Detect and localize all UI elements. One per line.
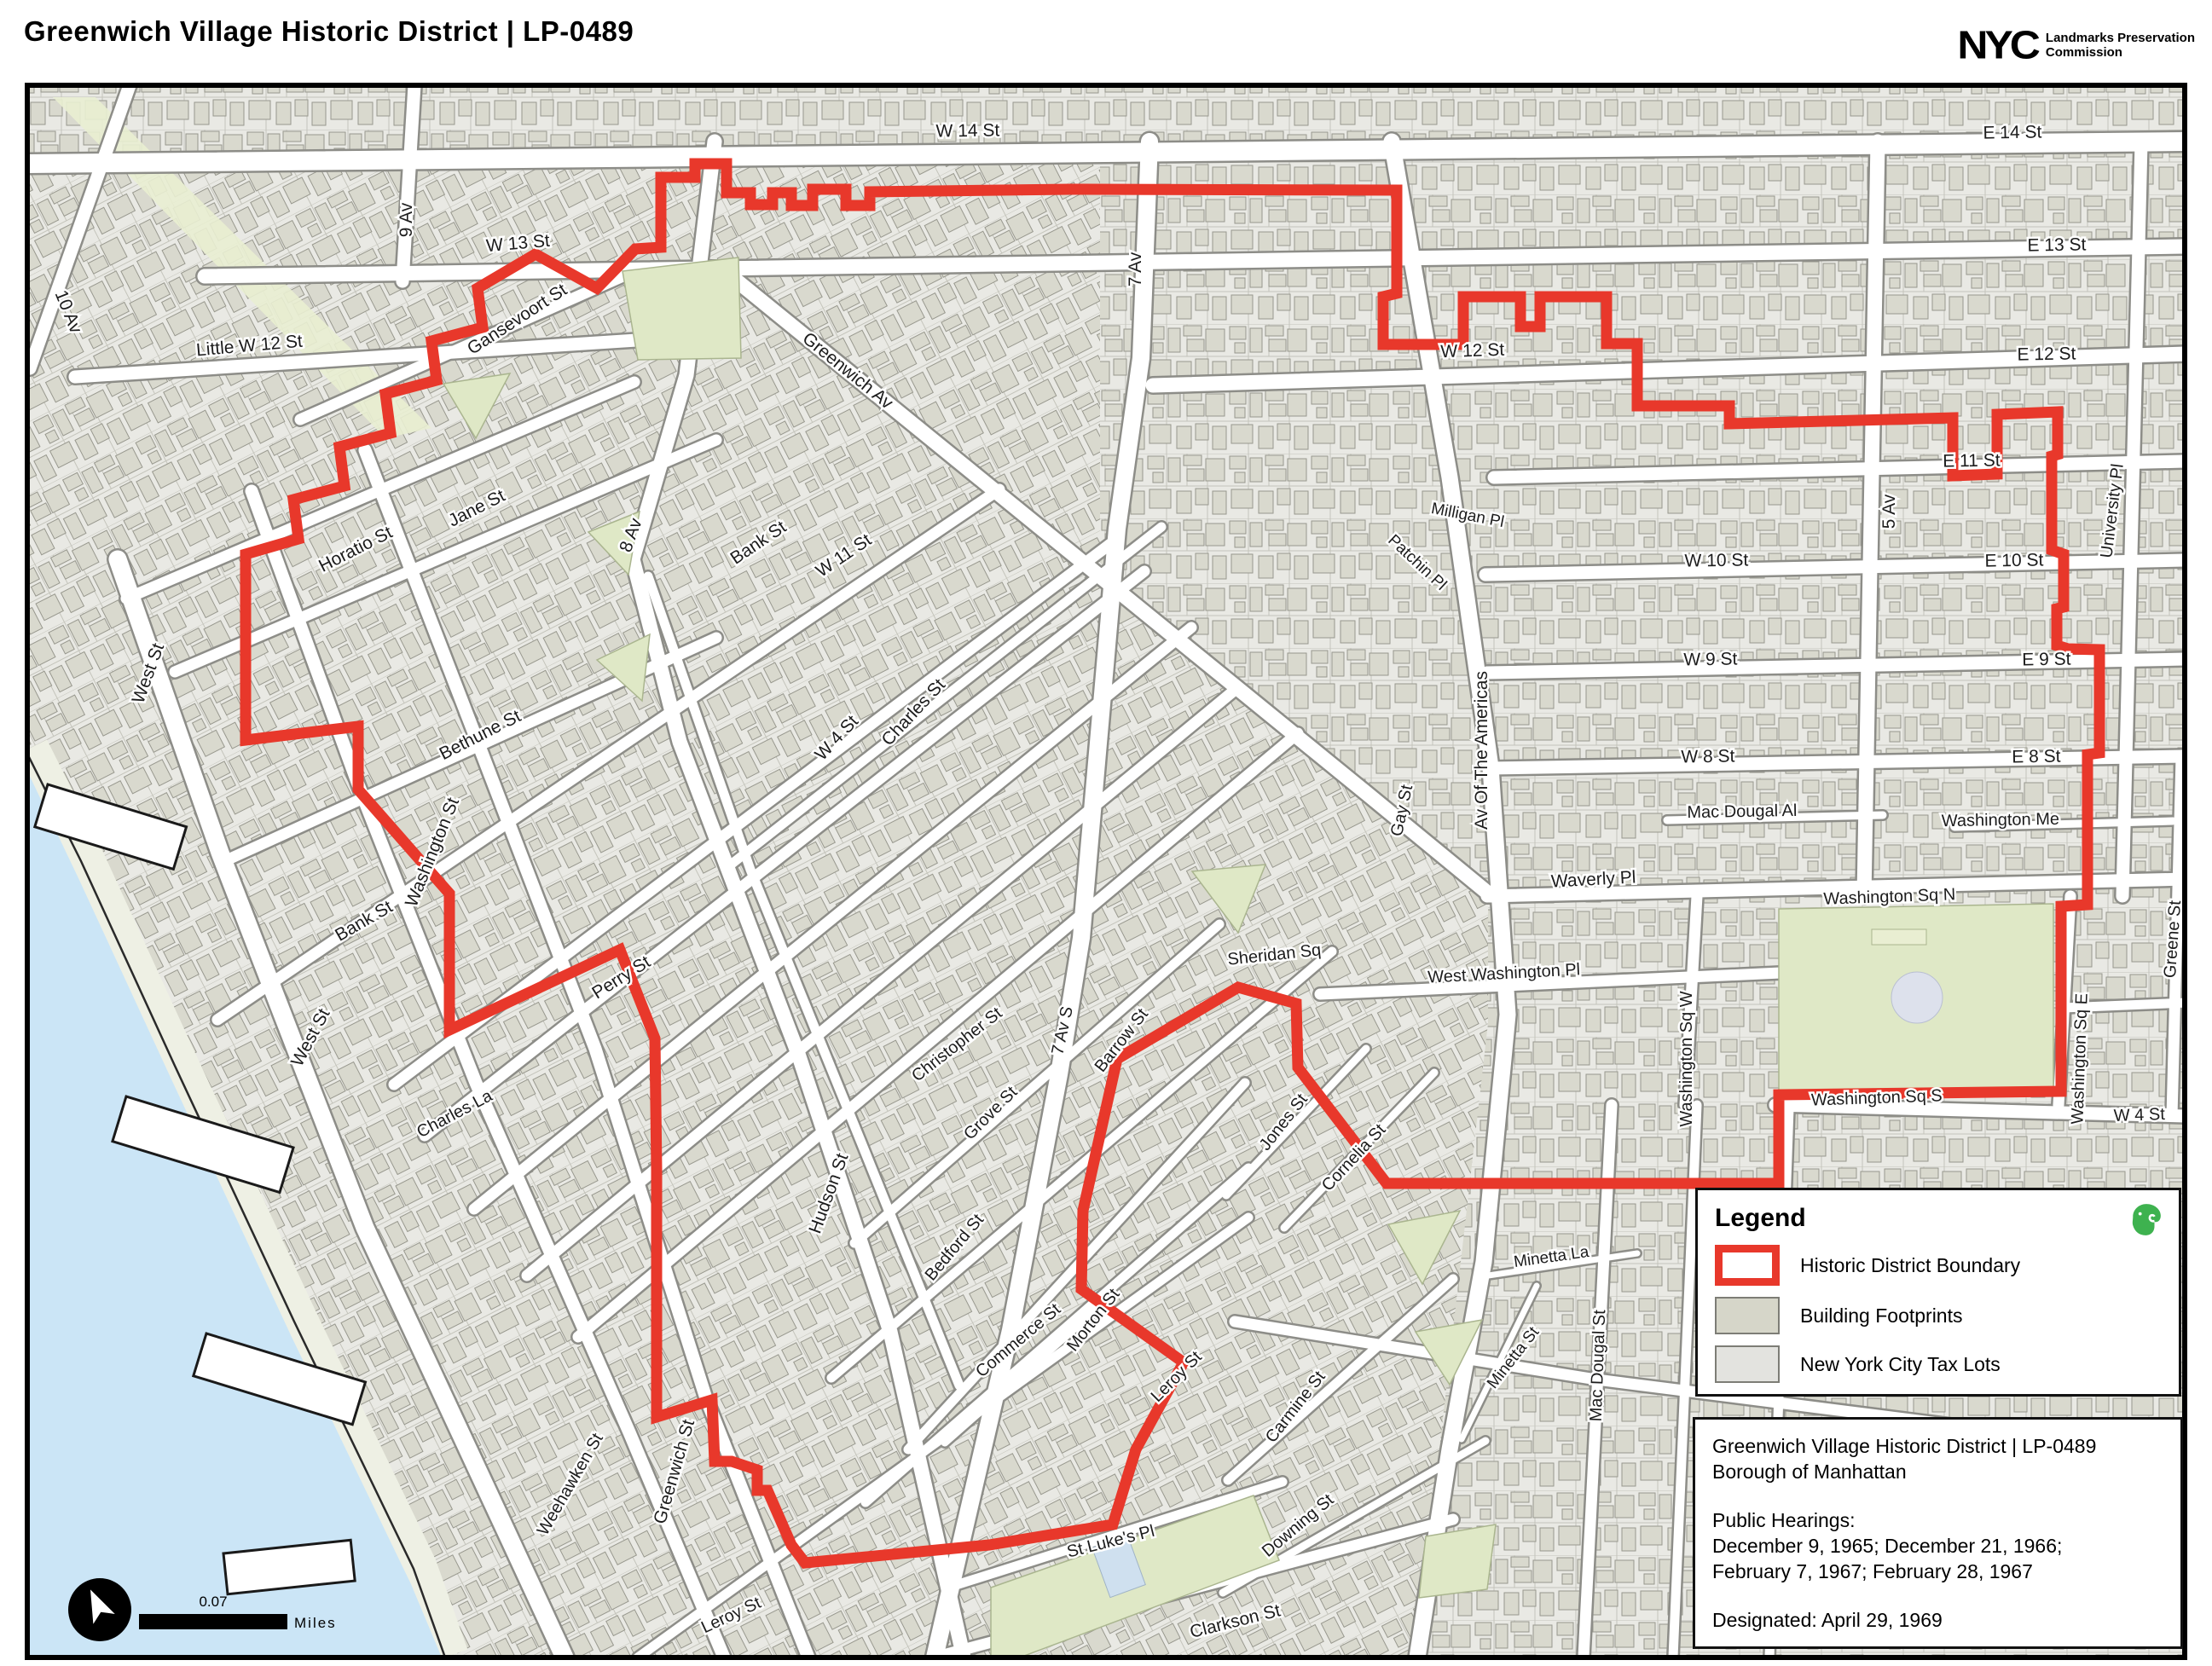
scale-value: 0.07 bbox=[199, 1594, 227, 1610]
street-label: Washington Me bbox=[1942, 810, 2060, 830]
historic-district-map: W 14 StE 14 StW 13 StE 13 St9 Av10 Av7 A… bbox=[0, 0, 2212, 1666]
boundary-swatch bbox=[1715, 1245, 1780, 1286]
legend-item-buildings: Building Footprints bbox=[1715, 1297, 2162, 1334]
street-label: Av Of The Americas bbox=[1472, 671, 1491, 830]
street-label: E 8 St bbox=[2012, 747, 2061, 767]
info-hearings-label: Public Hearings: bbox=[1712, 1507, 2163, 1533]
info-borough: Borough of Manhattan bbox=[1712, 1459, 2163, 1484]
evernote-elephant-icon bbox=[2128, 1202, 2163, 1238]
street-label: E 14 St bbox=[1983, 122, 2041, 142]
street-label: Washington Sq W bbox=[1677, 991, 1696, 1126]
street-label: 5 Av bbox=[1879, 494, 1899, 529]
street-label: E 9 St bbox=[2022, 650, 2071, 670]
wsp-fountain bbox=[1891, 972, 1943, 1023]
legend-title: Legend bbox=[1715, 1204, 2162, 1233]
street-label: W 8 St bbox=[1681, 746, 1735, 766]
street-label: W 9 St bbox=[1683, 649, 1738, 669]
street-label: E 12 St bbox=[2017, 344, 2076, 364]
street-label: Mac Dougal Al bbox=[1687, 801, 1797, 822]
taxlot-swatch bbox=[1715, 1345, 1780, 1383]
legend-item-taxlots: New York City Tax Lots bbox=[1715, 1345, 2162, 1383]
street-label: 7 Av bbox=[1126, 252, 1145, 286]
street-label: 9 Av bbox=[397, 202, 416, 237]
scale-unit: Miles bbox=[294, 1615, 337, 1631]
street-label: W 12 St bbox=[1440, 340, 1505, 362]
north-arrow-icon bbox=[68, 1578, 131, 1641]
street-label: W 4 St bbox=[2113, 1105, 2165, 1125]
building-swatch bbox=[1715, 1297, 1780, 1334]
street-label: E 10 St bbox=[1984, 550, 2043, 570]
street-label: W 14 St bbox=[935, 120, 999, 141]
info-hearings-2: February 7, 1967; February 28, 1967 bbox=[1712, 1559, 2163, 1584]
info-hearings-1: December 9, 1965; December 21, 1966; bbox=[1712, 1533, 2163, 1559]
street-label: W 10 St bbox=[1684, 550, 1748, 570]
district-info-panel: Greenwich Village Historic District | LP… bbox=[1693, 1417, 2183, 1649]
legend-panel: Legend Historic District Boundary Buildi… bbox=[1695, 1188, 2181, 1397]
street-label: E 13 St bbox=[2027, 234, 2086, 255]
info-district: Greenwich Village Historic District | LP… bbox=[1712, 1433, 2163, 1459]
street-label: Mac Dougal St bbox=[1587, 1309, 1610, 1421]
legend-item-boundary: Historic District Boundary bbox=[1715, 1245, 2162, 1286]
street-label: E 11 St bbox=[1943, 450, 2001, 471]
info-designated: Designated: April 29, 1969 bbox=[1712, 1607, 2163, 1633]
